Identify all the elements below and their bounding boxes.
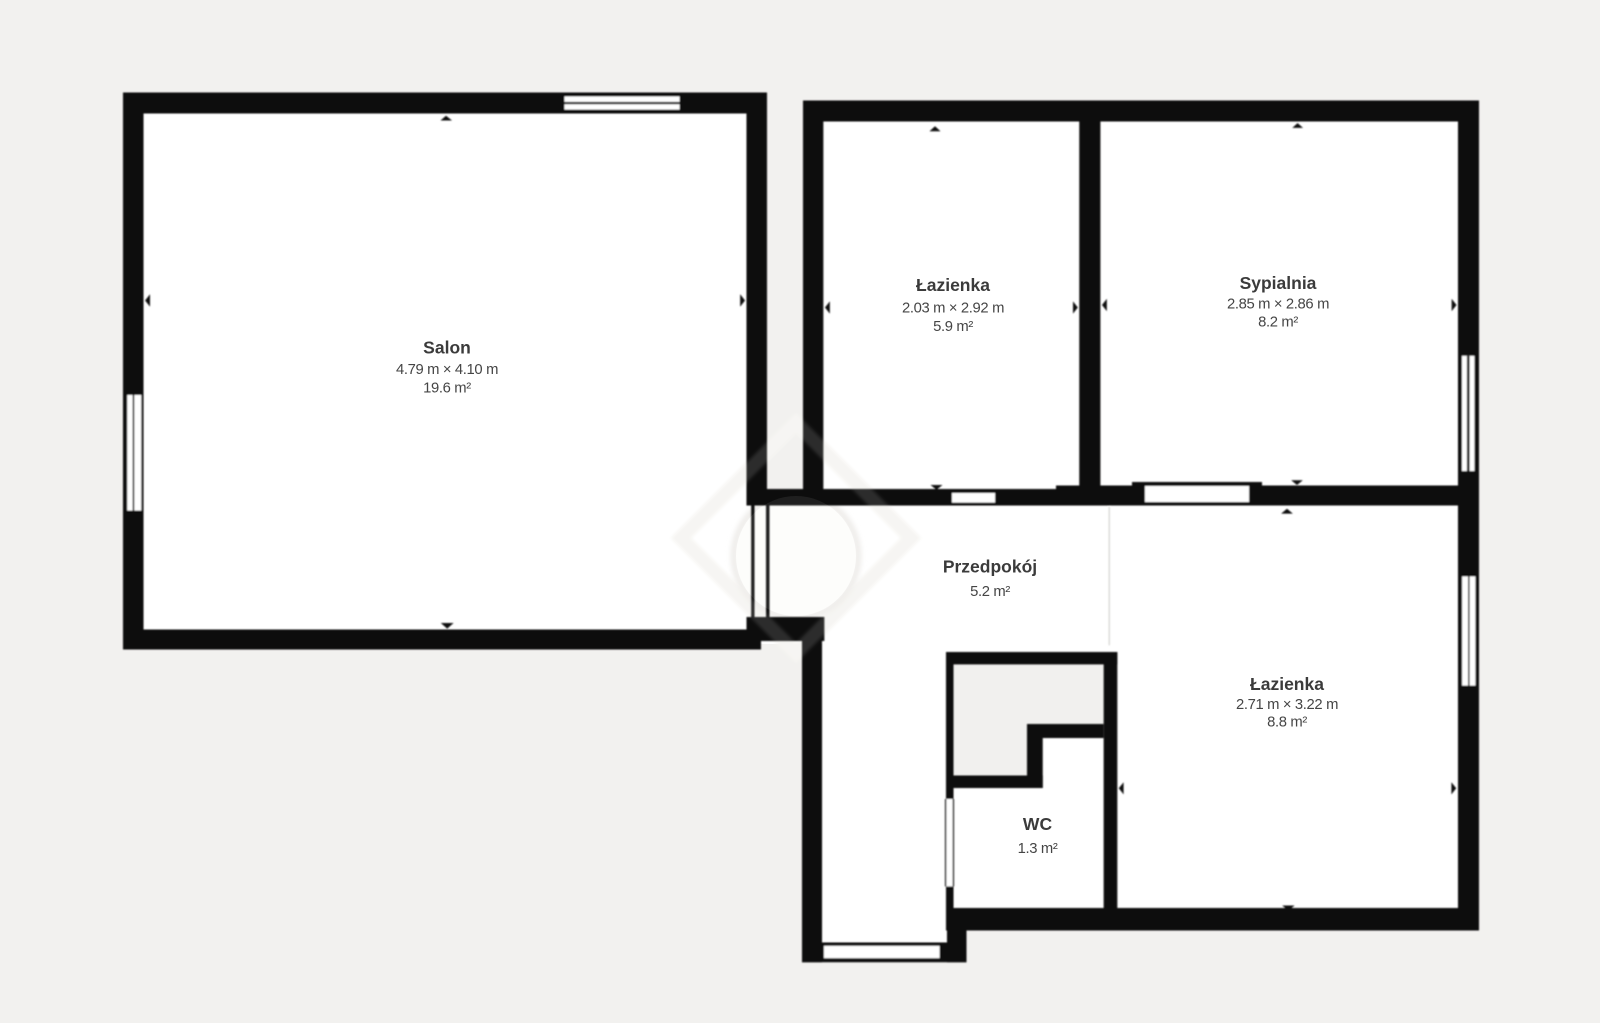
svg-text:8.8 m²: 8.8 m² [1267, 715, 1307, 731]
svg-text:5.9 m²: 5.9 m² [933, 319, 973, 335]
svg-text:8.2 m²: 8.2 m² [1258, 314, 1298, 330]
svg-text:2.03 m × 2.92 m: 2.03 m × 2.92 m [902, 300, 1004, 316]
svg-text:5.2 m²: 5.2 m² [970, 584, 1010, 600]
svg-text:Przedpokój: Przedpokój [943, 557, 1037, 577]
svg-text:Sypialnia: Sypialnia [1240, 273, 1317, 293]
svg-text:Łazienka: Łazienka [916, 275, 990, 295]
svg-text:19.6 m²: 19.6 m² [423, 381, 471, 397]
svg-text:2.85 m × 2.86 m: 2.85 m × 2.86 m [1227, 296, 1329, 312]
svg-text:WC: WC [1023, 814, 1053, 834]
svg-text:Salon: Salon [423, 338, 471, 358]
svg-text:Łazienka: Łazienka [1250, 674, 1324, 694]
svg-text:2.71 m × 3.22 m: 2.71 m × 3.22 m [1236, 697, 1338, 713]
svg-text:4.79 m × 4.10 m: 4.79 m × 4.10 m [396, 362, 498, 378]
svg-text:1.3 m²: 1.3 m² [1018, 841, 1058, 857]
